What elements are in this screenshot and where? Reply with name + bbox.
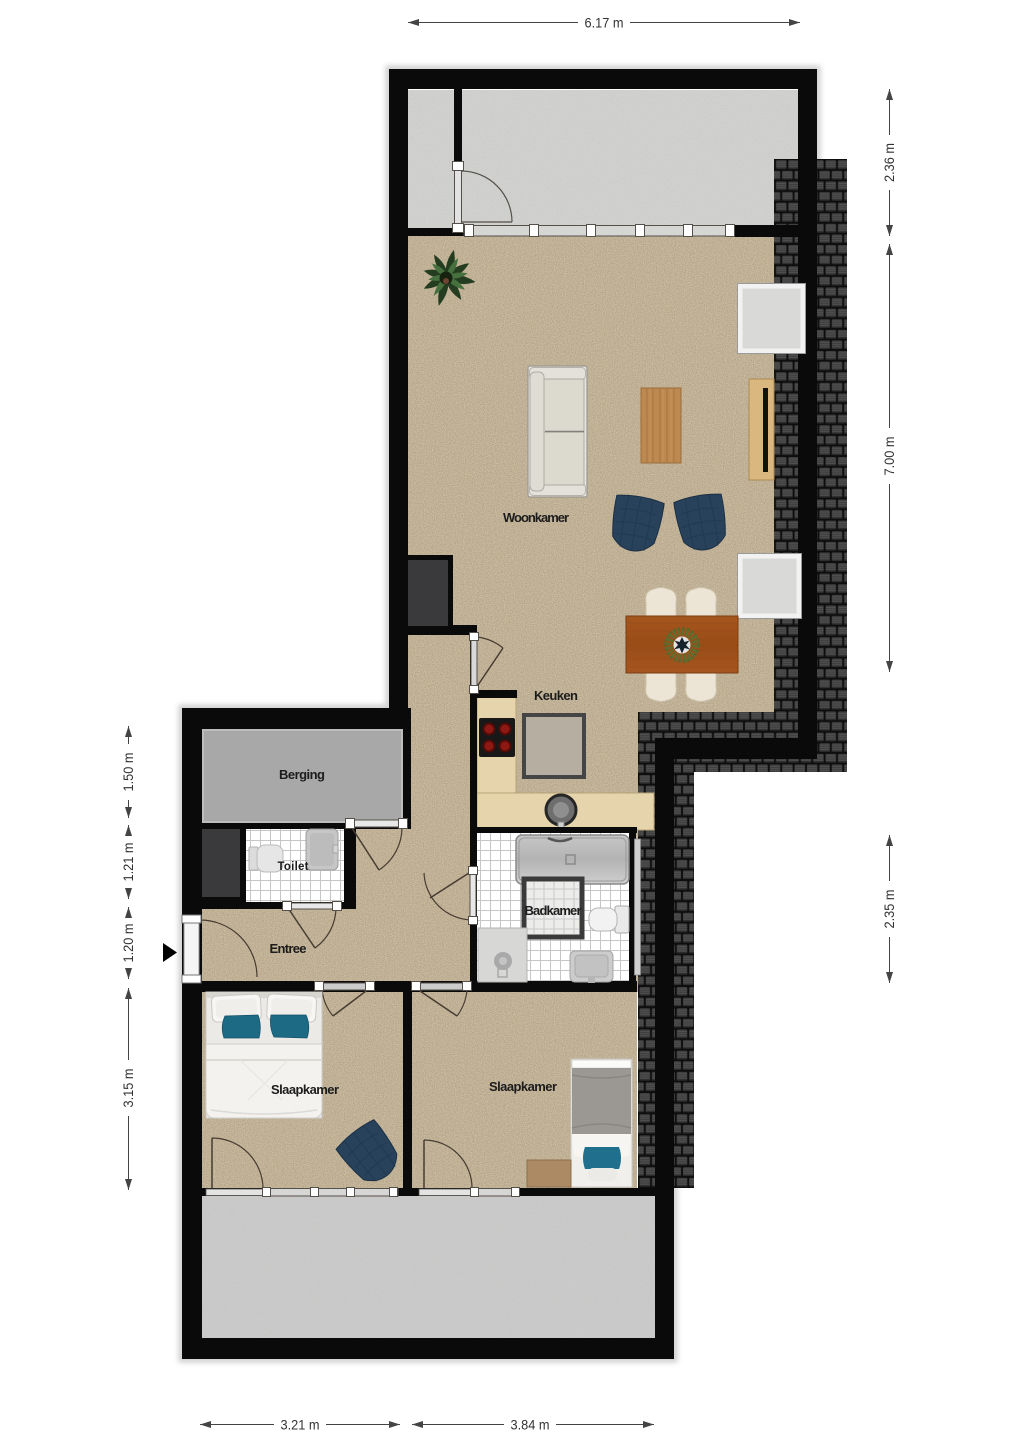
svg-text:1.50 m: 1.50 m — [120, 753, 136, 792]
svg-text:3.15 m: 3.15 m — [120, 1069, 136, 1108]
svg-text:7.00 m: 7.00 m — [881, 437, 897, 476]
svg-text:Toilet: Toilet — [278, 861, 309, 873]
svg-text:Badkamer: Badkamer — [525, 903, 582, 918]
svg-text:1.20 m: 1.20 m — [120, 924, 136, 963]
svg-text:6.17 m: 6.17 m — [585, 15, 624, 31]
svg-text:2.36 m: 2.36 m — [881, 143, 897, 182]
svg-text:Slaapkamer: Slaapkamer — [271, 1082, 339, 1097]
svg-text:Keuken: Keuken — [534, 688, 578, 703]
svg-text:3.84 m: 3.84 m — [511, 1417, 550, 1433]
svg-text:Entree: Entree — [270, 941, 307, 956]
svg-text:3.21 m: 3.21 m — [281, 1417, 320, 1433]
svg-text:Berging: Berging — [279, 767, 325, 782]
svg-text:1.21 m: 1.21 m — [120, 843, 136, 882]
svg-text:Slaapkamer: Slaapkamer — [489, 1079, 557, 1094]
svg-text:Woonkamer: Woonkamer — [503, 510, 569, 525]
svg-text:2.35 m: 2.35 m — [881, 890, 897, 929]
